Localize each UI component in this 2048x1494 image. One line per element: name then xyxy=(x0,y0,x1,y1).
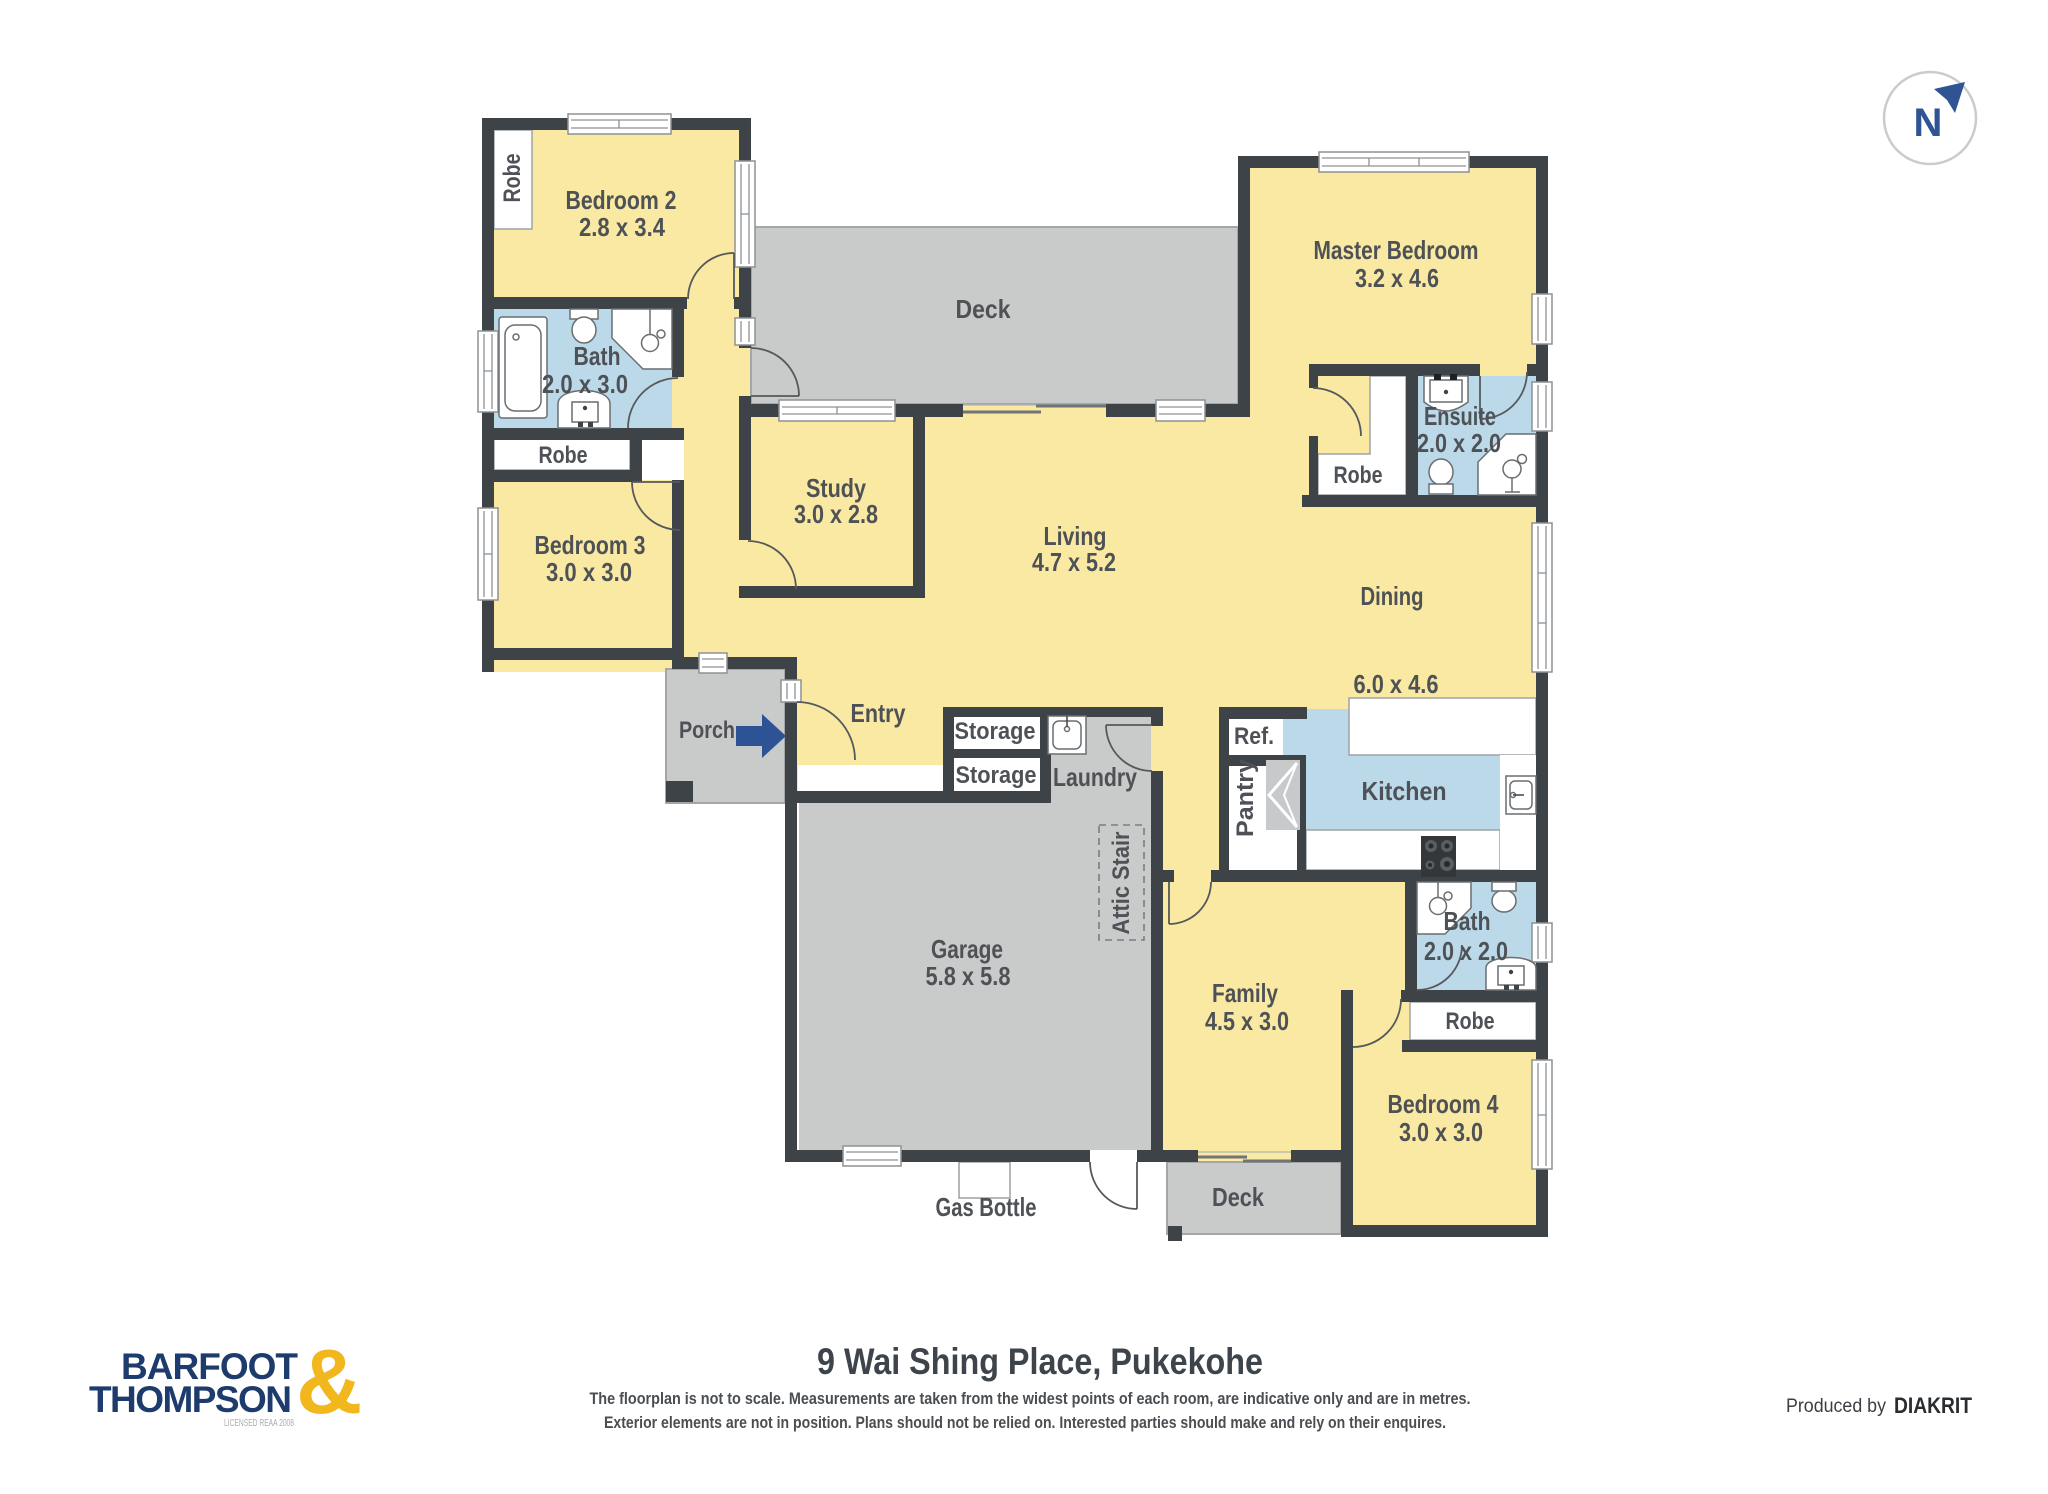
svg-text:Deck: Deck xyxy=(956,294,1011,324)
svg-text:2.0 x 2.0: 2.0 x 2.0 xyxy=(1417,428,1501,458)
svg-text:Porch: Porch xyxy=(679,717,735,744)
svg-text:Robe: Robe xyxy=(1446,1008,1495,1035)
svg-text:Attic Stair: Attic Stair xyxy=(1108,832,1135,935)
svg-text:Bath: Bath xyxy=(574,341,621,371)
svg-text:Ref.: Ref. xyxy=(1234,723,1274,750)
svg-text:Robe: Robe xyxy=(499,154,526,203)
svg-text:3.0 x 3.0: 3.0 x 3.0 xyxy=(1399,1117,1483,1147)
svg-text:DIAKRIT: DIAKRIT xyxy=(1894,1393,1972,1418)
svg-text:2.8 x 3.4: 2.8 x 3.4 xyxy=(579,212,665,242)
svg-text:Bath: Bath xyxy=(1444,906,1491,936)
svg-text:THOMPSON: THOMPSON xyxy=(89,1379,293,1420)
svg-text:3.0 x 3.0: 3.0 x 3.0 xyxy=(546,557,632,587)
svg-text:Storage: Storage xyxy=(955,718,1036,745)
svg-text:Laundry: Laundry xyxy=(1053,762,1137,792)
svg-text:3.0 x 2.8: 3.0 x 2.8 xyxy=(794,499,878,529)
svg-text:Kitchen: Kitchen xyxy=(1362,776,1447,806)
svg-text:4.7 x 5.2: 4.7 x 5.2 xyxy=(1032,547,1116,577)
svg-text:Bedroom 3: Bedroom 3 xyxy=(535,530,646,560)
svg-text:2.0 x 3.0: 2.0 x 3.0 xyxy=(542,369,628,399)
svg-text:Entry: Entry xyxy=(851,698,906,728)
svg-text:Exterior elements are not in p: Exterior elements are not in position. P… xyxy=(604,1413,1446,1432)
svg-text:The floorplan is not to scale.: The floorplan is not to scale. Measureme… xyxy=(590,1389,1471,1408)
svg-text:Dining: Dining xyxy=(1361,581,1424,611)
svg-text:9 Wai Shing Place, Pukekohe: 9 Wai Shing Place, Pukekohe xyxy=(817,1341,1263,1382)
svg-text:3.2 x 4.6: 3.2 x 4.6 xyxy=(1355,263,1439,293)
svg-text:Bedroom 4: Bedroom 4 xyxy=(1388,1089,1499,1119)
svg-text:Produced by: Produced by xyxy=(1786,1396,1886,1417)
svg-text:Robe: Robe xyxy=(1334,462,1383,489)
svg-text:Gas Bottle: Gas Bottle xyxy=(936,1192,1037,1222)
svg-text:6.0 x 4.6: 6.0 x 4.6 xyxy=(1354,669,1439,699)
svg-text:Pantry: Pantry xyxy=(1232,758,1259,837)
svg-text:Deck: Deck xyxy=(1212,1182,1264,1212)
svg-text:2.0 x 2.0: 2.0 x 2.0 xyxy=(1424,936,1508,966)
svg-text:Bedroom 2: Bedroom 2 xyxy=(566,185,677,215)
svg-text:5.8 x 5.8: 5.8 x 5.8 xyxy=(926,961,1011,991)
svg-text:Ensuite: Ensuite xyxy=(1424,401,1496,431)
svg-text:Robe: Robe xyxy=(539,442,588,469)
svg-text:4.5 x 3.0: 4.5 x 3.0 xyxy=(1205,1006,1289,1036)
svg-text:Storage: Storage xyxy=(956,762,1037,789)
svg-text:Family: Family xyxy=(1212,978,1278,1008)
svg-text:&: & xyxy=(296,1331,362,1433)
svg-text:Master Bedroom: Master Bedroom xyxy=(1314,235,1479,265)
svg-text:LICENSED REAA 2008: LICENSED REAA 2008 xyxy=(224,1418,294,1429)
svg-text:N: N xyxy=(1914,101,1943,145)
svg-text:Garage: Garage xyxy=(931,934,1003,964)
